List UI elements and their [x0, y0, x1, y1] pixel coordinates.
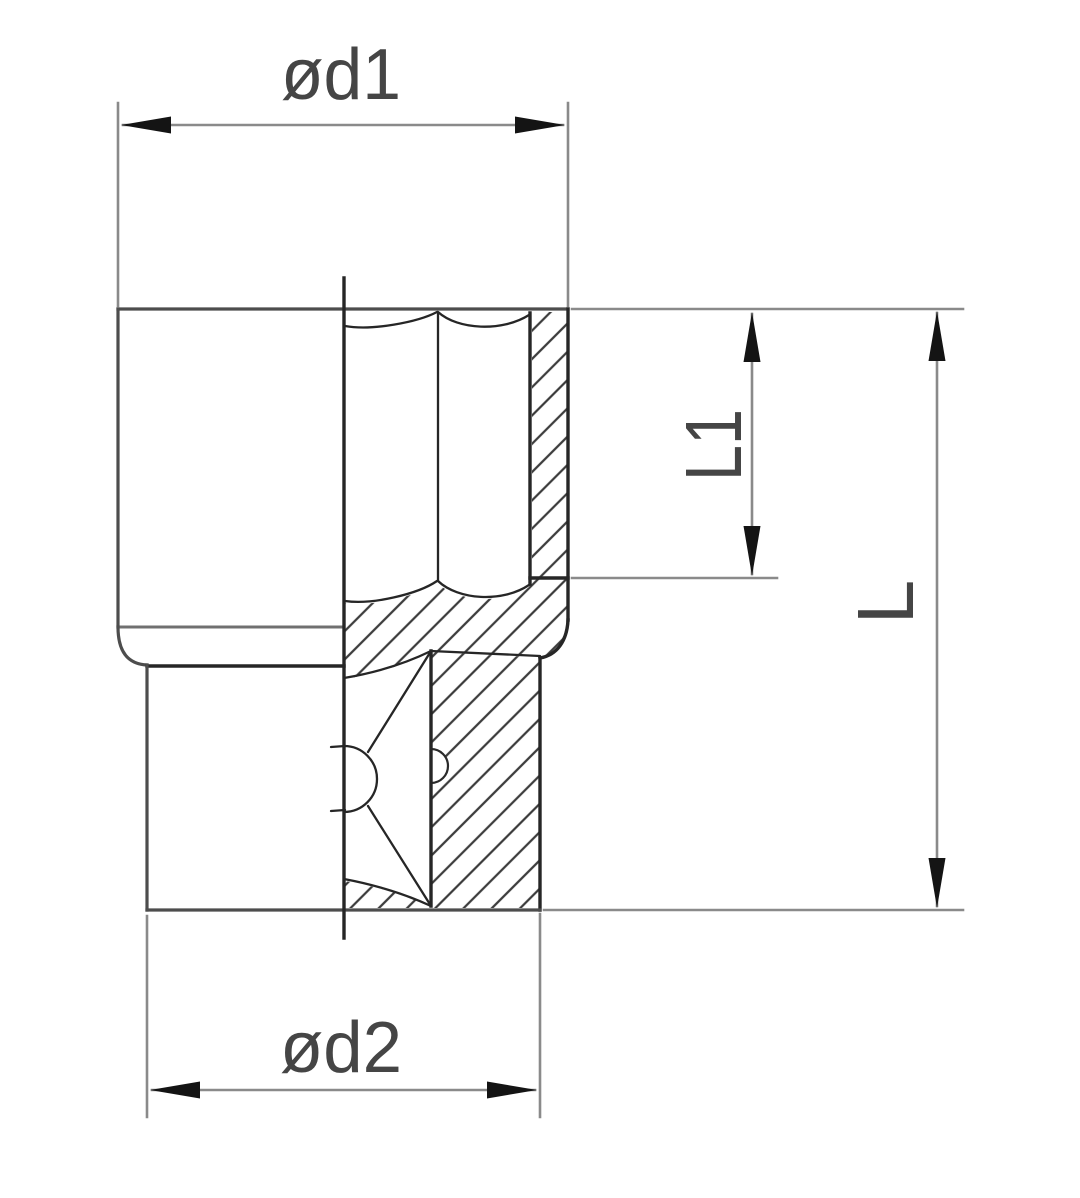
section-hatching — [345, 312, 567, 908]
hatch-region-upper-wall — [532, 312, 567, 577]
dimension-d2: ød2 — [147, 914, 540, 1117]
socket-section-drawing: ød1 ød2 L1 L — [0, 0, 1080, 1198]
dim-l-label: L — [841, 580, 930, 625]
technical-drawing-page: ød1 ød2 L1 L — [0, 0, 1080, 1198]
neck-fillet — [118, 627, 147, 665]
dim-d1-arrow-left — [121, 117, 171, 134]
dimension-d1: ød1 — [118, 35, 568, 306]
dimension-l: L — [544, 311, 963, 910]
detent-hole-arc — [344, 746, 377, 812]
dim-l-arrow-bottom — [929, 858, 946, 908]
dim-l1-label: L1 — [669, 409, 758, 481]
dim-l1-arrow-top — [744, 312, 761, 362]
detent-stub-top — [331, 746, 345, 747]
dim-d2-arrow-left — [150, 1082, 200, 1099]
detent-stub-bottom — [331, 810, 345, 811]
dim-l1-arrow-bottom — [744, 526, 761, 576]
dim-l-arrow-top — [929, 311, 946, 361]
hatch-region-lower-wall — [345, 652, 540, 908]
dimension-l1: L1 — [572, 309, 963, 578]
dim-d2-arrow-right — [487, 1082, 537, 1099]
dim-d2-label: ød2 — [280, 1008, 402, 1088]
dim-d1-label: ød1 — [281, 35, 401, 115]
dim-d1-arrow-right — [515, 117, 565, 134]
bore-top-scallop-right — [438, 312, 529, 327]
bore-top-scallop-left — [345, 312, 437, 327]
